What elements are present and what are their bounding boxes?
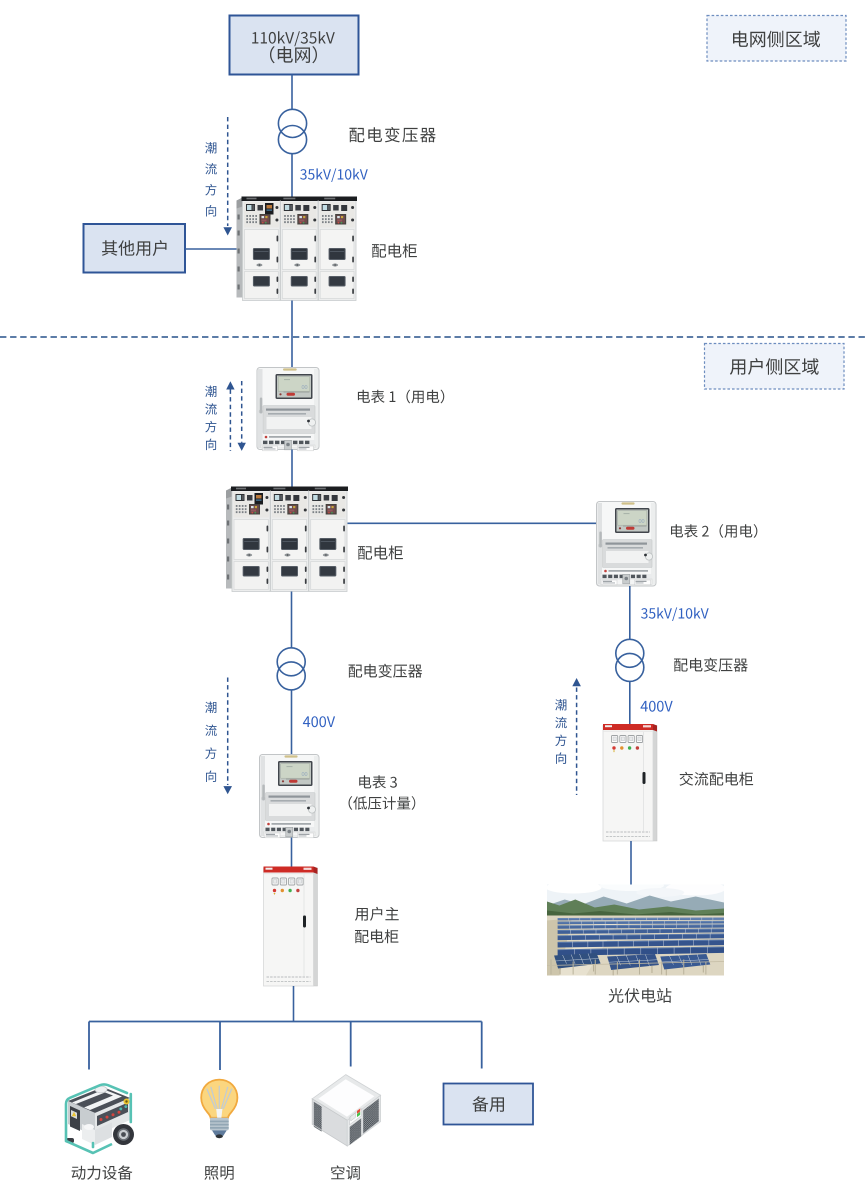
svg-text:00: 00 bbox=[639, 519, 645, 525]
svg-text:00: 00 bbox=[302, 772, 308, 778]
svg-text:00: 00 bbox=[302, 385, 308, 391]
